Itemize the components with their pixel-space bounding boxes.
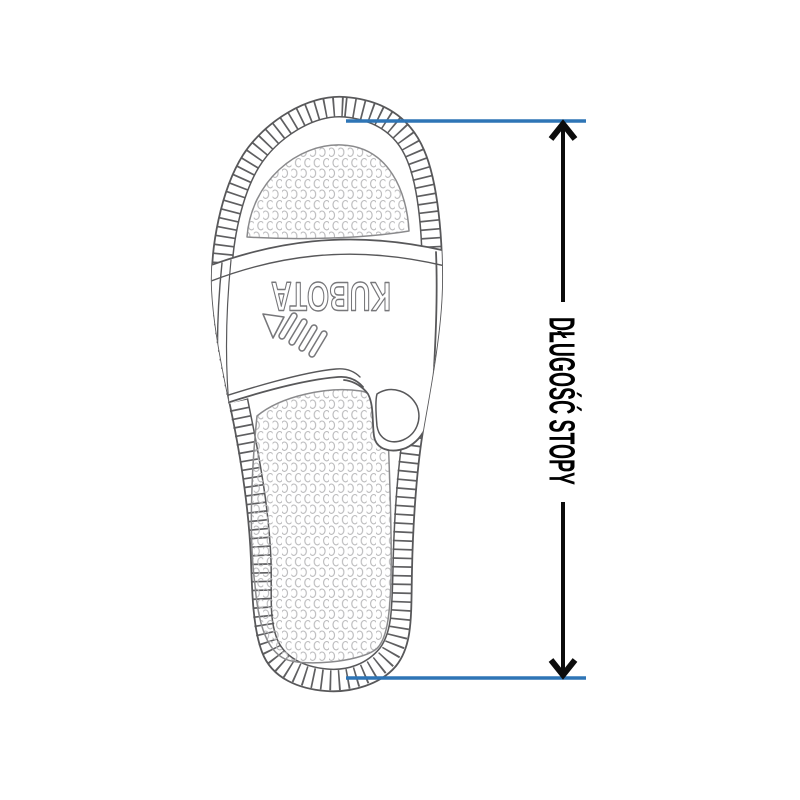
footbed-main [251,390,391,663]
measurement-label: DŁUGOŚĆ STOPY [541,317,583,485]
size-guide-diagram: KUBOTA [0,0,800,800]
sandal-illustration: KUBOTA [198,97,446,691]
diagram-canvas: KUBOTA [0,0,800,800]
footbed-toe-dome [247,145,409,239]
brand-logo-text: KUBOTA [271,274,391,320]
